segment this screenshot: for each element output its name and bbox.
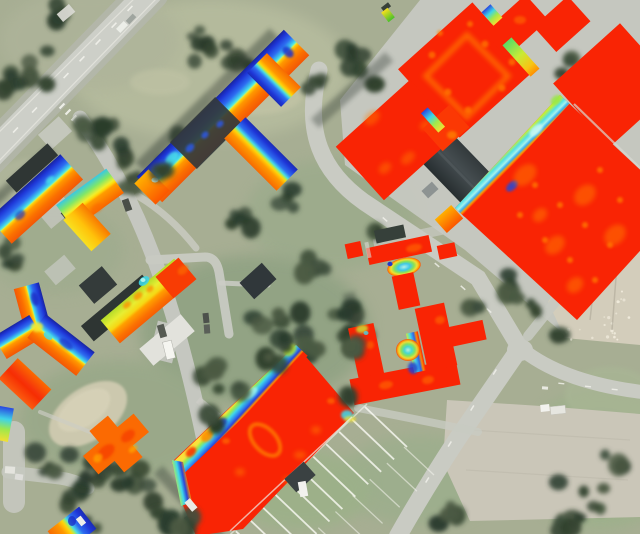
speckle: [620, 298, 622, 300]
light-roof: [15, 473, 24, 480]
tree-canopy: [290, 301, 311, 324]
speckle: [613, 332, 615, 334]
tree-canopy: [121, 476, 134, 490]
tree-canopy: [46, 464, 64, 479]
heat-blob: [311, 426, 321, 434]
light-roof: [5, 466, 15, 474]
tree-canopy: [139, 478, 157, 491]
tree-canopy: [198, 404, 220, 425]
lane-dash: [558, 383, 564, 384]
tree-canopy: [40, 46, 55, 57]
map-feature-layers: [0, 0, 640, 534]
tree-canopy: [342, 338, 363, 359]
heat-blob: [68, 516, 76, 526]
tree-canopy: [38, 76, 55, 92]
tree-canopy: [220, 40, 233, 51]
speckle: [623, 299, 626, 302]
speckle: [591, 337, 594, 340]
heat-dot: [465, 107, 472, 114]
tree-canopy: [10, 253, 24, 264]
tree-canopy: [549, 474, 568, 490]
heat-dot: [499, 85, 506, 92]
vehicle-car: [204, 324, 211, 333]
tree-canopy: [92, 117, 113, 138]
tree-canopy: [303, 336, 315, 349]
tree-canopy: [318, 262, 331, 275]
heat-blob: [327, 398, 335, 404]
tree-canopy: [579, 485, 590, 497]
tree-canopy: [597, 483, 610, 494]
heat-dot: [467, 21, 473, 27]
map-canvas[interactable]: [0, 0, 640, 534]
speckle: [570, 338, 572, 340]
heat-dot: [542, 237, 548, 243]
speckle: [607, 316, 610, 319]
tree-canopy: [21, 54, 38, 70]
tree-canopy: [157, 162, 175, 178]
tree-canopy: [338, 386, 358, 407]
tree-canopy: [73, 116, 92, 134]
tree-canopy: [270, 196, 289, 210]
tree-canopy: [608, 453, 629, 476]
heat-dot: [617, 197, 623, 203]
heat-patch-cyan: [396, 339, 420, 361]
tree-canopy: [496, 282, 517, 305]
heat-dot: [517, 212, 523, 218]
speckle: [606, 335, 609, 338]
tree-canopy: [25, 442, 47, 462]
speckle: [621, 290, 623, 292]
heat-dot: [592, 277, 598, 283]
lane-dash: [585, 386, 591, 387]
heat-blob: [447, 131, 457, 139]
heat-blob: [294, 451, 306, 459]
heat-dot: [437, 30, 443, 36]
tree-canopy: [4, 69, 17, 82]
speckle: [616, 339, 618, 341]
speckle: [603, 316, 605, 318]
vehicle-car: [542, 386, 548, 390]
speckle: [615, 312, 617, 314]
speckle: [628, 316, 631, 319]
heat-dot: [582, 222, 588, 228]
heat-dot: [509, 59, 516, 66]
tree-canopy: [270, 355, 288, 375]
tree-canopy: [207, 357, 227, 375]
heat-dot: [607, 242, 613, 248]
tree-canopy: [278, 332, 290, 346]
heat-blob: [31, 322, 43, 332]
tree-canopy: [287, 202, 299, 214]
tree-canopy: [314, 73, 328, 84]
tree-canopy: [500, 268, 518, 282]
heat-dot: [557, 202, 563, 208]
speckle: [603, 324, 605, 326]
tree-canopy: [346, 50, 358, 63]
tree-canopy: [204, 43, 219, 58]
speckle: [612, 332, 614, 334]
heat-dot: [597, 167, 603, 173]
intersection-pad: [507, 339, 533, 361]
tree-canopy: [194, 25, 205, 35]
aerial-solar-potential-map[interactable]: [0, 0, 640, 534]
tree-canopy: [60, 447, 79, 463]
heat-blob: [387, 262, 392, 266]
tree-canopy: [213, 384, 225, 395]
vehicle-truck-trailer: [550, 405, 566, 415]
tree-canopy: [272, 308, 286, 321]
tree-canopy: [241, 217, 261, 239]
vehicle-truck-cab: [540, 404, 550, 412]
tree-canopy: [234, 381, 244, 392]
heat-blob: [141, 278, 146, 282]
heat-dot: [482, 41, 489, 48]
tree-canopy: [113, 137, 130, 154]
tree-canopy: [282, 182, 301, 197]
vehicle-car: [202, 313, 209, 324]
tree-canopy: [252, 316, 274, 334]
lane-dash: [612, 389, 618, 390]
speckle: [613, 336, 616, 339]
speckle: [618, 301, 620, 303]
tree-canopy: [294, 261, 315, 284]
heat-blob: [222, 438, 230, 444]
heat-blob: [235, 468, 245, 476]
heat-dot: [532, 182, 538, 188]
tree-canopy: [550, 330, 566, 343]
heat-dot: [445, 89, 452, 96]
tree-canopy: [530, 305, 542, 318]
heat-blob: [514, 16, 526, 24]
dry-grass-patch: [130, 69, 190, 95]
tree-canopy: [441, 505, 459, 520]
heat-dot: [429, 52, 436, 59]
tree-canopy: [187, 54, 201, 69]
heat-dot: [567, 257, 573, 263]
heat-blob: [364, 331, 369, 335]
tree-canopy: [472, 301, 486, 313]
tree-canopy: [600, 449, 610, 460]
speckle: [579, 329, 581, 331]
tree-canopy: [587, 501, 600, 512]
